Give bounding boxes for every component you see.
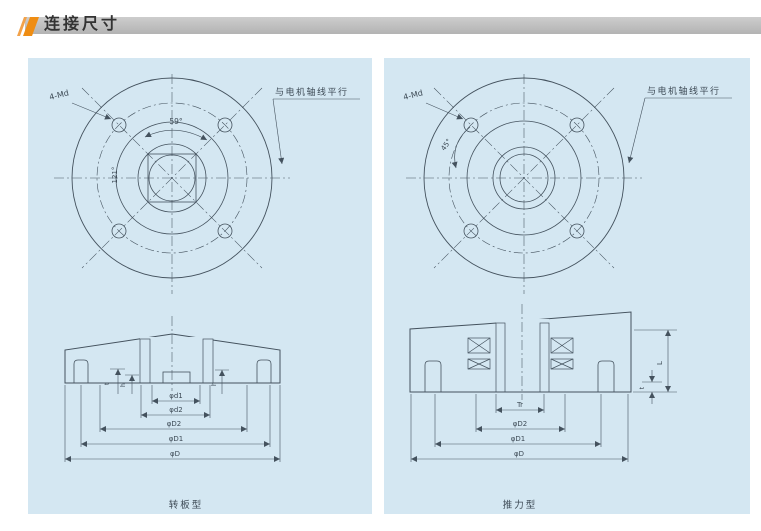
- left-drawing-panel: 4-Md 59° 121° 与电机轴线平行 t h h: [28, 58, 372, 514]
- left-panel-caption: 转板型: [169, 499, 204, 511]
- dim-t: t: [639, 386, 646, 389]
- left-cross-section: t h h: [65, 316, 280, 394]
- right-top-view-annotations: 4-Md 45° 与电机轴线平行: [402, 85, 732, 168]
- left-flange-top-view: [54, 74, 290, 294]
- left-top-view-annotations: 4-Md 59° 121° 与电机轴线平行: [48, 86, 360, 183]
- bolt-hole-label: 4-Md: [402, 88, 424, 102]
- dim-D2: φD2: [167, 420, 181, 428]
- small-dim-h1: h: [120, 383, 127, 387]
- right-panel-caption: 推力型: [503, 499, 538, 511]
- angle-121-label: 121°: [111, 167, 119, 184]
- right-drawing-panel: 4-Md 45° 与电机轴线平行: [384, 58, 750, 514]
- catalog-page: { "header": { "title": "连接尺寸" }, "left_p…: [0, 0, 761, 531]
- left-drawing-svg: 4-Md 59° 121° 与电机轴线平行 t h h: [28, 58, 372, 514]
- left-dimension-labels: φd1 φd2 φD2 φD1 φD: [167, 392, 183, 458]
- centerlines: [54, 74, 290, 294]
- dim-L: L: [656, 361, 664, 365]
- dim-D1: φD1: [511, 435, 525, 443]
- axis-note-label: 与电机轴线平行: [275, 86, 349, 98]
- dim-d2: φd2: [169, 406, 183, 414]
- dim-D1: φD1: [169, 435, 183, 443]
- page-title: 连接尺寸: [44, 15, 120, 35]
- orange-corner-icon: [17, 15, 41, 37]
- dim-D2: φD2: [513, 420, 527, 428]
- small-dim-h2: h: [211, 382, 218, 386]
- angle-45-label: 45°: [440, 137, 454, 152]
- dim-d1: φd1: [169, 392, 183, 400]
- small-dim-t: t: [104, 382, 111, 385]
- right-cross-section: [410, 304, 631, 400]
- section-header-bar: [25, 17, 761, 34]
- dim-Tr: Tr: [516, 401, 523, 409]
- angle-59-label: 59°: [169, 117, 183, 126]
- axis-note-label: 与电机轴线平行: [647, 85, 721, 97]
- bolt-hole-label: 4-Md: [48, 88, 70, 102]
- right-drawing-svg: 4-Md 45° 与电机轴线平行: [384, 58, 750, 514]
- right-flange-top-view: [406, 74, 642, 294]
- dim-D: φD: [170, 450, 180, 458]
- centerlines: [406, 74, 642, 294]
- dim-D: φD: [514, 450, 524, 458]
